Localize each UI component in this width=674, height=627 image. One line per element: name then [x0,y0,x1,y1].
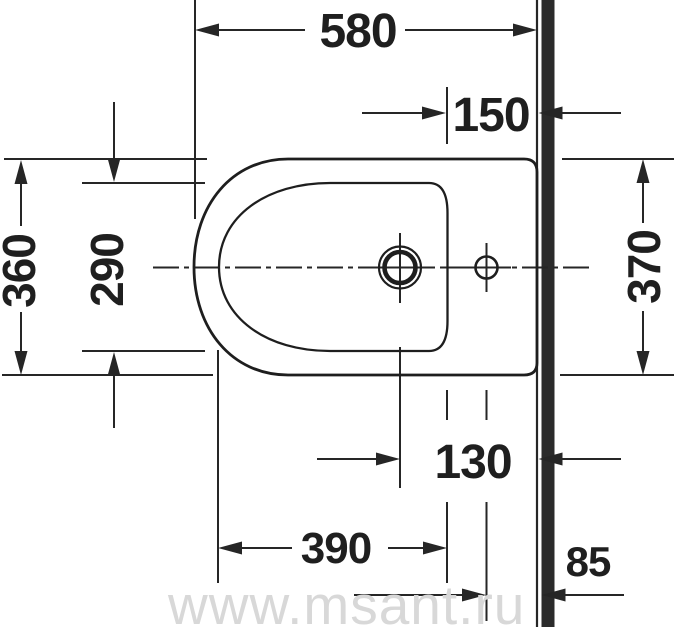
dim-hole-to-wall: 130 [317,436,621,489]
dim-hole-to-wall-label: 130 [434,436,511,489]
dim-width-at-wall: 370 [618,159,670,375]
watermark: www.msant.ru [167,574,525,627]
dim-overall-depth: 580 [195,5,537,58]
dim-inner-width-label: 290 [81,233,133,307]
dim-inner-width: 290 [81,102,133,428]
dim-rim-to-wall: 150 [362,89,621,142]
dim-rim-to-wall-label: 150 [452,89,529,142]
dim-overall-depth-label: 580 [319,5,396,58]
dim-overall-width-label: 360 [0,234,45,308]
dim-width-at-wall-label: 370 [618,230,670,304]
dim-inner-depth: 390 [218,524,447,573]
dim-outlet-to-wall-label: 85 [566,538,611,585]
technical-drawing-page: 580 150 360 290 370 130 390 85 [0,0,674,627]
dim-inner-depth-label: 390 [301,524,371,573]
technical-drawing-canvas: 580 150 360 290 370 130 390 85 [0,0,674,627]
dim-overall-width: 360 [0,160,45,375]
